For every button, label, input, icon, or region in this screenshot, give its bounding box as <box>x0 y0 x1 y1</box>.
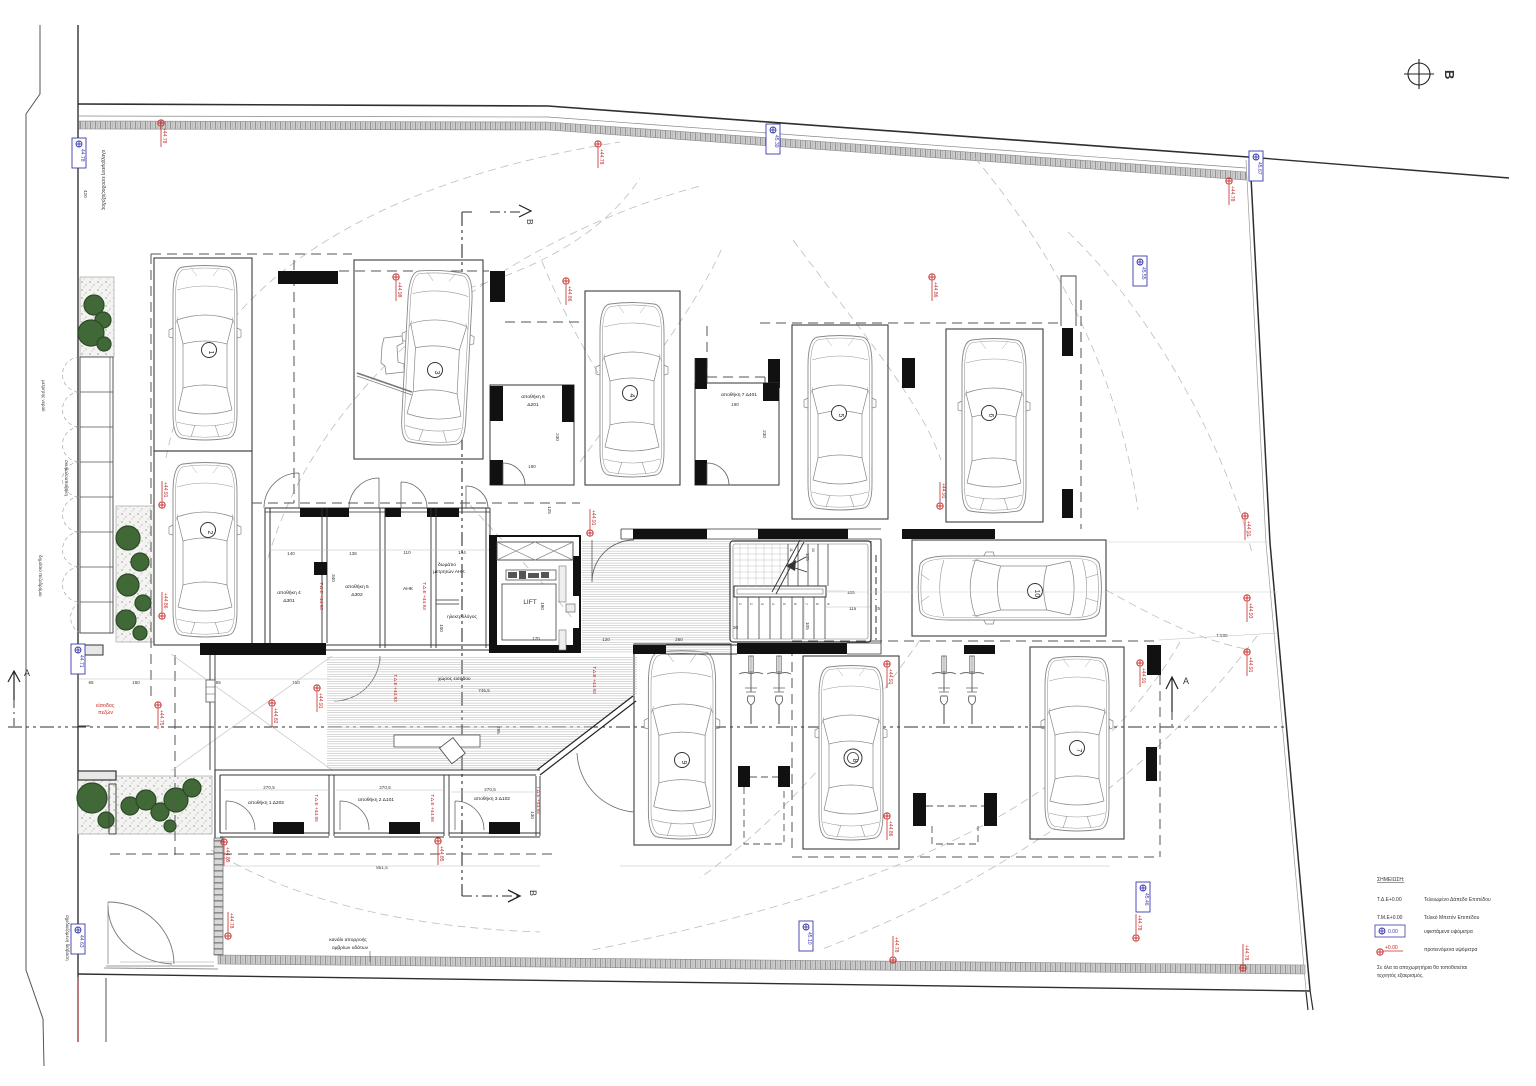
svg-text:2: 2 <box>206 530 213 534</box>
svg-text:5: 5 <box>837 413 844 417</box>
svg-text:420: 420 <box>83 190 88 198</box>
svg-text:+44.91: +44.91 <box>1245 521 1251 537</box>
svg-text:+44.86: +44.86 <box>932 282 938 298</box>
svg-text:125: 125 <box>547 506 552 514</box>
svg-text:Δ301: Δ301 <box>283 598 295 604</box>
svg-text:120: 120 <box>602 637 610 642</box>
svg-text:μετρητών ΑΗΚ: μετρητών ΑΗΚ <box>433 568 465 575</box>
svg-text:+44.91: +44.91 <box>887 669 893 685</box>
svg-text:8: 8 <box>815 603 819 605</box>
svg-text:+44.91: +44.91 <box>317 693 323 709</box>
svg-text:+44.91: +44.91 <box>590 510 596 526</box>
svg-text:44.78: 44.78 <box>79 149 85 162</box>
svg-text:Τελειωμένο Δάπεδο Επιπέδου: Τελειωμένο Δάπεδο Επιπέδου <box>1424 896 1491 903</box>
svg-text:ομβρίων υδάτων: ομβρίων υδάτων <box>332 944 369 951</box>
svg-text:σχεδιαζόμενη διάβαση: σχεδιαζόμενη διάβαση <box>64 915 71 961</box>
svg-text:+44.93: +44.93 <box>1247 603 1253 619</box>
svg-text:αποθήκη 4: αποθήκη 4 <box>277 589 301 596</box>
svg-text:+44.85: +44.85 <box>224 847 230 863</box>
svg-text:45.67: 45.67 <box>1256 162 1262 175</box>
svg-text:ΣΗΜΕΙΩΣΗ:: ΣΗΜΕΙΩΣΗ: <box>1377 877 1404 883</box>
svg-text:+44.78: +44.78 <box>893 937 899 953</box>
svg-text:+44.91: +44.91 <box>162 482 168 498</box>
svg-text:δημόσιο πεζοδρόμιο: δημόσιο πεζοδρόμιο <box>37 555 44 597</box>
svg-text:αποθήκη 5: αποθήκη 5 <box>345 583 369 590</box>
svg-text:9: 9 <box>680 760 687 764</box>
svg-text:αποθήκη 6: αποθήκη 6 <box>521 393 545 400</box>
svg-text:αποθήκη 7 Δ401: αποθήκη 7 Δ401 <box>721 391 757 398</box>
svg-text:+44.82: +44.82 <box>272 708 278 724</box>
svg-text:ΑΗΚ: ΑΗΚ <box>403 586 414 592</box>
svg-text:Τ.Μ.Ε+0.00: Τ.Μ.Ε+0.00 <box>1377 915 1403 921</box>
svg-text:ηλεκτρολόγος: ηλεκτρολόγος <box>447 613 477 620</box>
svg-text:0.00: 0.00 <box>1388 929 1398 935</box>
svg-text:7: 7 <box>804 603 808 605</box>
svg-text:295: 295 <box>496 726 501 734</box>
svg-text:10: 10 <box>811 548 815 552</box>
svg-text:B: B <box>528 890 538 896</box>
svg-text:230: 230 <box>762 430 767 438</box>
svg-text:Τ.Δ.Ε +44.88: Τ.Δ.Ε +44.88 <box>429 794 435 822</box>
svg-text:δωμάτιο: δωμάτιο <box>438 561 456 568</box>
svg-text:2: 2 <box>749 603 753 605</box>
svg-text:5: 5 <box>782 603 786 605</box>
svg-text:45.46: 45.46 <box>1143 893 1149 906</box>
svg-text:αποθήκη 3 Δ102: αποθήκη 3 Δ102 <box>474 795 510 802</box>
svg-text:προτεινόμενα υψόμετρα: προτεινόμενα υψόμετρα <box>1424 946 1477 953</box>
svg-text:230: 230 <box>555 433 560 441</box>
svg-text:B: B <box>1442 70 1457 79</box>
svg-text:+44.86: +44.86 <box>887 821 893 837</box>
svg-text:150: 150 <box>292 680 300 685</box>
svg-text:+44.78: +44.78 <box>1243 945 1249 961</box>
svg-text:+44.78: +44.78 <box>228 913 234 929</box>
svg-text:150: 150 <box>132 680 140 685</box>
svg-text:+44.85: +44.85 <box>438 846 444 862</box>
svg-text:+44.78: +44.78 <box>598 149 604 165</box>
svg-text:1: 1 <box>738 603 742 605</box>
svg-text:Τ.Δ.Ε +44.93: Τ.Δ.Ε +44.93 <box>421 582 427 610</box>
svg-text:+44.78: +44.78 <box>1136 915 1142 931</box>
svg-text:Τ.Δ.Ε +44.93: Τ.Δ.Ε +44.93 <box>591 666 597 694</box>
svg-text:7: 7 <box>1075 748 1082 752</box>
svg-text:Σε όλα τα αποχωρητήρια θα τοπο: Σε όλα τα αποχωρητήρια θα τοποθετείται <box>1377 964 1467 971</box>
svg-text:144: 144 <box>458 550 466 555</box>
svg-text:100: 100 <box>439 624 444 632</box>
svg-text:+44.98: +44.98 <box>396 282 402 298</box>
svg-text:σκυβαλοαποθήκη: σκυβαλοαποθήκη <box>64 460 70 496</box>
svg-text:+44.78: +44.78 <box>1229 186 1235 202</box>
svg-text:πεζών: πεζών <box>98 710 113 716</box>
svg-text:είσοδος: είσοδος <box>96 703 115 709</box>
svg-text:105: 105 <box>847 590 855 595</box>
svg-text:11: 11 <box>789 548 793 552</box>
svg-text:Τ.Δ.Ε +44.88: Τ.Δ.Ε +44.88 <box>535 786 541 814</box>
svg-text:303,1: 303,1 <box>1216 633 1228 638</box>
svg-text:τεχνητός εξαερισμός.: τεχνητός εξαερισμός. <box>1377 972 1424 979</box>
svg-text:αποθήκη 2 Δ101: αποθήκη 2 Δ101 <box>358 796 394 803</box>
svg-text:4: 4 <box>628 393 635 397</box>
svg-text:105: 105 <box>805 553 810 561</box>
svg-text:340: 340 <box>331 574 336 582</box>
svg-text:190: 190 <box>731 402 739 407</box>
svg-text:9: 9 <box>826 603 830 605</box>
svg-text:10: 10 <box>1033 590 1040 598</box>
svg-text:A: A <box>24 668 30 678</box>
svg-text:αποθήκη 1 Δ202: αποθήκη 1 Δ202 <box>248 799 284 806</box>
svg-text:65: 65 <box>88 680 94 685</box>
svg-text:+0.00: +0.00 <box>1385 945 1398 951</box>
svg-text:μετρητης νερού: μετρητης νερού <box>41 380 47 412</box>
svg-text:136: 136 <box>349 551 357 556</box>
svg-text:44.71: 44.71 <box>78 655 84 668</box>
svg-text:B: B <box>525 219 535 225</box>
svg-text:250: 250 <box>675 637 683 642</box>
svg-text:45.10: 45.10 <box>806 932 812 945</box>
svg-text:LIFT: LIFT <box>523 599 536 606</box>
svg-text:6: 6 <box>987 413 994 417</box>
svg-text:υφιστάμενα υψόμετρα: υφιστάμενα υψόμετρα <box>1424 928 1473 935</box>
svg-text:190: 190 <box>528 464 536 469</box>
svg-text:6: 6 <box>793 603 797 605</box>
svg-text:Δ201: Δ201 <box>527 402 539 408</box>
svg-text:8: 8 <box>851 758 858 762</box>
svg-text:+44.86: +44.86 <box>566 286 572 302</box>
svg-text:Τ.Δ.Ε +44.93: Τ.Δ.Ε +44.93 <box>392 674 398 702</box>
svg-text:Τελικό Μπετόν Επιπέδου: Τελικό Μπετόν Επιπέδου <box>1424 914 1480 921</box>
svg-text:30: 30 <box>733 625 739 630</box>
svg-text:+44.75: +44.75 <box>158 710 164 726</box>
svg-text:Τ.Δ.Ε +44.85: Τ.Δ.Ε +44.85 <box>313 794 319 822</box>
svg-text:κανάλι απορροής: κανάλι απορροής <box>329 936 367 943</box>
svg-text:4: 4 <box>771 603 775 605</box>
svg-text:A: A <box>1183 676 1189 686</box>
svg-text:Τ.Δ.Ε +44.93: Τ.Δ.Ε +44.93 <box>318 582 324 610</box>
svg-text:45.55: 45.55 <box>1140 267 1146 280</box>
svg-text:+44.91: +44.91 <box>1140 668 1146 684</box>
svg-text:Τ.Δ.Ε+0.00: Τ.Δ.Ε+0.00 <box>1377 897 1402 903</box>
svg-text:270,5: 270,5 <box>484 787 496 792</box>
svg-text:+44.91: +44.91 <box>940 483 946 499</box>
svg-text:3: 3 <box>760 603 764 605</box>
svg-text:χώρος εισόδου: χώρος εισόδου <box>438 675 471 682</box>
svg-text:270,5: 270,5 <box>379 785 391 790</box>
svg-text:130: 130 <box>530 811 535 819</box>
svg-text:140: 140 <box>287 551 295 556</box>
svg-text:ελεγχόμενη εισοδος/έξοδος: ελεγχόμενη εισοδος/έξοδος <box>100 150 107 211</box>
svg-text:745,5: 745,5 <box>478 688 490 693</box>
svg-text:110: 110 <box>403 550 411 555</box>
svg-text:1: 1 <box>207 350 214 354</box>
svg-text:105: 105 <box>805 622 810 630</box>
svg-text:+44.78: +44.78 <box>161 128 167 144</box>
svg-text:Δ302: Δ302 <box>351 592 363 598</box>
svg-text:180: 180 <box>540 602 545 610</box>
svg-text:3: 3 <box>433 370 440 374</box>
svg-text:+44.91: +44.91 <box>1247 657 1253 673</box>
svg-text:170: 170 <box>532 636 540 641</box>
svg-text:270,5: 270,5 <box>263 785 275 790</box>
svg-text:45.39: 45.39 <box>773 135 779 148</box>
svg-text:+44.86: +44.86 <box>162 593 168 609</box>
svg-text:44.63: 44.63 <box>78 935 84 948</box>
